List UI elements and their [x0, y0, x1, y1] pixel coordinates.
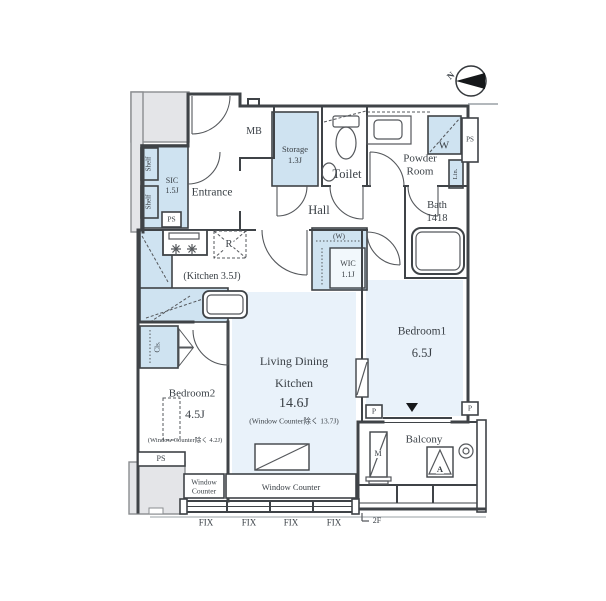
washer-label: W [439, 141, 449, 152]
storage-name: Storage [282, 145, 308, 154]
window-counter-small-1: Window [191, 478, 217, 486]
drain-icon [459, 444, 473, 458]
storage-size: 1.3J [288, 156, 302, 165]
bedroom1-name: Bedroom1 [398, 326, 447, 338]
toilet-bowl [336, 127, 356, 159]
toilet-label: Toilet [333, 168, 362, 181]
window-counter-large-label: Window Counter [262, 483, 320, 492]
entrance-label: Entrance [192, 187, 233, 199]
balcony-railing [358, 485, 477, 503]
ldk-label-2: Kitchen [275, 377, 313, 389]
window-post-left [180, 499, 187, 514]
shelf-label-top: Shelf [146, 157, 153, 172]
storage-door [277, 186, 307, 216]
window-counter-small-2: Counter [192, 487, 216, 495]
wic-inner [330, 248, 365, 288]
bedroom2-name: Bedroom2 [169, 389, 215, 400]
floor-label: 2F [373, 517, 381, 525]
toilet-door [330, 186, 363, 219]
fix-label-3: FIX [284, 519, 299, 528]
meter-box-label: M [373, 450, 382, 458]
bathtub [412, 228, 464, 274]
ps-label-bottom: PS [157, 455, 166, 463]
bedroom1-door [367, 232, 400, 265]
floor-plan: MB Entrance SIC 1.5J Shelf Shelf PS Stor… [0, 0, 606, 601]
mb-label: MB [246, 127, 262, 137]
wic-size: 1.1J [341, 271, 354, 279]
balcony-right-wall [477, 420, 486, 512]
stove [163, 230, 207, 255]
bedroom2-note: (Window Counter除く 4.2J) [148, 438, 222, 445]
ldk-size: 14.6J [279, 397, 309, 411]
bedroom2-dashed-counter [163, 398, 180, 440]
ldk-note: (Window Counter除く 13.7J) [249, 417, 338, 425]
bedroom2-door [193, 330, 228, 365]
powder-room-door [370, 152, 404, 186]
entrance-door [192, 96, 230, 134]
pipe-label-right: P [468, 404, 472, 412]
fix-label-4: FIX [327, 519, 342, 528]
shelf-label-bottom: Shelf [146, 195, 153, 210]
bath-size: 1418 [427, 214, 448, 225]
ldk-door [262, 230, 307, 275]
burner-icon [187, 244, 197, 254]
bedroom2-size: 4.5J [185, 408, 205, 420]
sic-name: SIC [166, 177, 178, 185]
wic-name: WIC [340, 260, 356, 268]
cls-folding-door [179, 329, 193, 366]
cls-label: Cls. [155, 341, 162, 352]
pipe-label-left: P [372, 407, 376, 415]
kitchen-label: (Kitchen 3.5J) [183, 272, 240, 282]
vanity-basin [374, 120, 402, 139]
hall-label: Hall [308, 204, 330, 217]
powder-room-label-2: Room [407, 167, 434, 178]
ldk-label-1: Living Dining [260, 355, 328, 367]
exterior-notch [149, 508, 163, 514]
bath-name: Bath [427, 201, 447, 212]
bedroom1-size: 6.5J [412, 347, 433, 360]
powder-room-label-1: Powder [403, 154, 437, 165]
sic-door [188, 152, 220, 184]
fix-label-2: FIX [242, 519, 257, 528]
balcony-label: Balcony [406, 435, 443, 446]
wic-note: (W) [333, 232, 345, 240]
meter-box-foot [369, 481, 388, 484]
floor-plan-drawing [0, 0, 606, 601]
refrigerator-label: R [224, 240, 233, 251]
sic-size: 1.5J [165, 187, 178, 195]
toilet-tank [333, 116, 359, 127]
ac-unit-label: A [436, 465, 444, 474]
drain-icon-inner [463, 448, 469, 454]
ps-label-right: PS [466, 137, 474, 144]
burner-icon [171, 244, 181, 254]
linen-label: Lin. [453, 169, 460, 180]
window-post-right [352, 499, 359, 514]
fix-label-1: FIX [199, 519, 214, 528]
ps-label-entrance: PS [167, 215, 175, 223]
